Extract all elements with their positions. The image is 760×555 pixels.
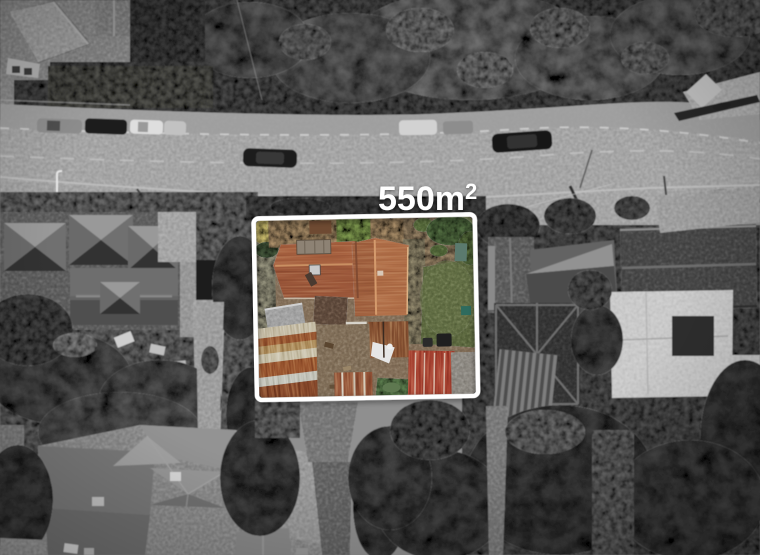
svg-text:550m2: 550m2 [378,179,477,218]
